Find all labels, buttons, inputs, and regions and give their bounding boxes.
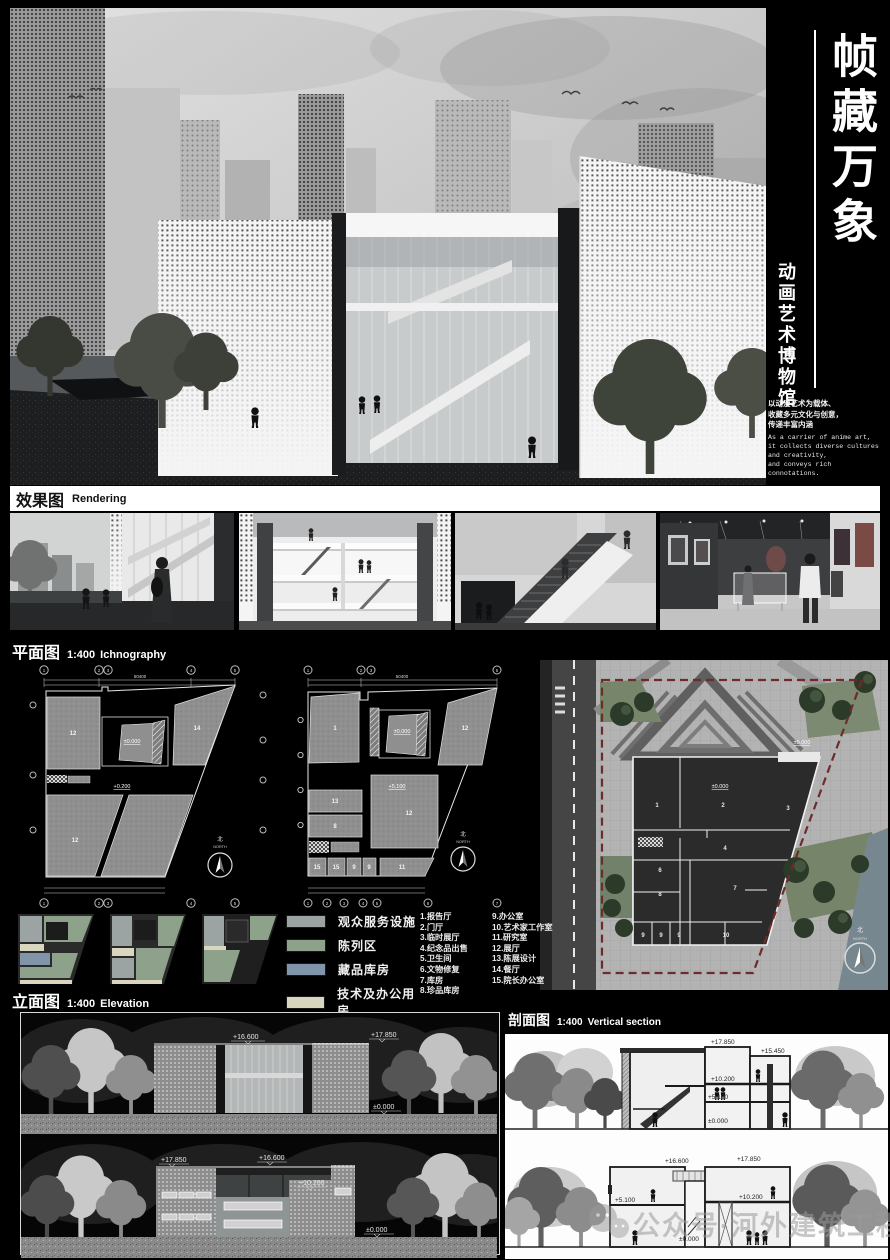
legend-swatch (286, 939, 326, 952)
level-label: +17.850 (371, 1032, 397, 1039)
level-marker: +0.200 (114, 784, 131, 790)
room-index-item: 11.研究室 (492, 933, 553, 944)
level-marker: ±0.000 (124, 739, 141, 745)
room-index-item: 6.文物修复 (420, 965, 468, 976)
section-drawing-1: +17.850 +15.450 +10.200 +5.100 ±0.000 (505, 1034, 888, 1140)
grid-bubbles-bottom (40, 899, 239, 907)
section-scale: 1:400 (557, 1017, 583, 1028)
room-index-item: 5.卫生间 (420, 954, 468, 965)
section-title-cn: 立面图 (12, 988, 60, 1012)
intro-en-line: it collects diverse cultures (768, 442, 886, 451)
level-label: ±0.000 (366, 1227, 387, 1234)
section-scale: 1:400 (67, 998, 95, 1010)
level-label: +10.200 (739, 1194, 763, 1201)
room-label: 12 (406, 811, 413, 817)
room-label: 15 (314, 865, 321, 871)
legend-zones: 观众服务设施 陈列区 藏品库房 技术及办公用房 (286, 913, 426, 1026)
room-label: 12 (70, 731, 77, 737)
elevation-drawing-2: +17.850 +16.600 +10.200 ±0.000 (21, 1140, 497, 1258)
board-title: 帧藏万象 (822, 32, 882, 252)
grid-label: 4 (190, 901, 193, 906)
grid-label: 5 (234, 668, 237, 673)
grid-label: 2 (326, 901, 329, 906)
site-plan: 1 2 3 4 6 8 7 9 9 9 10 ±0.000 ±0.000 北 N… (540, 660, 888, 990)
level-label: +10.200 (711, 1076, 735, 1083)
section-header-section: 剖面图 1:400 Vertical section (508, 1010, 661, 1030)
grid-bubbles-top (40, 666, 239, 674)
legend-label: 陈列区 (338, 937, 377, 954)
grid-label: 2 (360, 668, 363, 673)
grid-label: 1 (43, 901, 46, 906)
legend-row: 陈列区 (286, 937, 426, 954)
legend-swatch (286, 915, 326, 928)
north-en: NORTH (213, 845, 227, 849)
board-subtitle: 动画艺术博物馆 (773, 262, 799, 409)
legend-row: 藏品库房 (286, 961, 426, 978)
floor-plan-1: 50400 1 2 3 4 5 1 2 3 4 5 12 14 12 ±0.00… (25, 660, 270, 910)
room-label: 10 (723, 933, 730, 939)
section-header-elevation: 立面图 1:400 Elevation (12, 988, 149, 1012)
grid-label: 5 (496, 668, 499, 673)
room-index-item: 3.临时展厅 (420, 933, 468, 944)
level-marker: ±0.000 (394, 729, 411, 735)
north-arrow: 北 NORTH (208, 835, 232, 877)
room-index-item: 14.餐厅 (492, 965, 553, 976)
room-label: 11 (399, 865, 406, 871)
room-index-item: 15.院长办公室 (492, 976, 553, 987)
grid-label: 3 (107, 901, 110, 906)
level-label: +17.850 (737, 1156, 761, 1163)
zoning-thumb-3 (202, 914, 278, 984)
room-index-item: 7.库房 (420, 976, 468, 987)
building-elevation-2 (156, 1165, 355, 1237)
grid-label: 5 (234, 901, 237, 906)
grid-label: 1 (307, 901, 310, 906)
section-title-cn: 效果图 (16, 487, 64, 511)
render-gallery-interior (660, 513, 880, 630)
room-label: 15 (333, 865, 340, 871)
room-index-item: 8.珍品库房 (420, 986, 468, 997)
watermark: 公众号·河外建筑工程 (585, 1202, 890, 1244)
section-title-cn: 剖面图 (508, 1010, 550, 1030)
title-divider-line (814, 30, 816, 388)
room-index-item: 10.艺术家工作室 (492, 923, 553, 934)
building-section-1 (620, 1047, 790, 1129)
ground-strip (21, 1114, 497, 1134)
legend-swatch (286, 996, 325, 1009)
room-index-item: 4.纪念品出售 (420, 944, 468, 955)
room-label: 14 (194, 726, 201, 732)
elevation-panel: +16.600 +17.850 ±0.000 +17.850 +16.600 (20, 1012, 500, 1255)
level-label: +16.600 (259, 1155, 285, 1162)
zoning-thumb-1 (18, 914, 94, 984)
render-street-view (10, 513, 234, 630)
grid-label: 7 (496, 901, 499, 906)
grid-label: 3 (343, 901, 346, 906)
total-dimension: 50400 (396, 674, 409, 679)
zoning-thumbnails (16, 912, 278, 988)
grid-label: 6 (427, 901, 430, 906)
level-label: +5.100 (708, 1094, 728, 1101)
section-title-en: Vertical section (588, 1017, 661, 1028)
north-cn: 北 (217, 835, 223, 843)
level-label: ±0.000 (708, 1118, 728, 1125)
intro-en-line: and conveys rich connotations. (768, 460, 886, 478)
room-label: 12 (72, 838, 79, 844)
north-en: NORTH (456, 840, 470, 844)
level-label: +10.200 (299, 1180, 325, 1187)
section-title-en: Rendering (72, 493, 126, 505)
level-label: +16.600 (233, 1034, 259, 1041)
north-arrow: 北 NORTH (451, 830, 475, 871)
room-index-col2: 9.办公室 10.艺术家工作室 11.研究室 12.展厅 13.陈展设计 14.… (492, 912, 553, 986)
room-index-col1: 1.报告厅 2.门厅 3.临时展厅 4.纪念品出售 5.卫生间 6.文物修复 7… (420, 912, 468, 997)
room-index-item: 13.陈展设计 (492, 954, 553, 965)
intro-en-line: and creativity, (768, 451, 886, 460)
intro-en-line: As a carrier of anime art, (768, 433, 886, 442)
level-label: +16.600 (665, 1158, 689, 1165)
room-index-item: 12.展厅 (492, 944, 553, 955)
intro-cn-line: 收藏多元文化与创意， (768, 410, 886, 421)
ground-strip (21, 1237, 497, 1258)
legend-swatch (286, 963, 326, 976)
room-index-item: 9.办公室 (492, 912, 553, 923)
north-en: NORTH (853, 936, 867, 941)
room-label: 13 (332, 799, 339, 805)
grid-label: 2 (98, 668, 101, 673)
total-dimension: 50400 (134, 674, 147, 679)
level-label: +17.850 (711, 1039, 735, 1046)
legend-label: 藏品库房 (338, 961, 390, 978)
grid-label: 2 (98, 901, 101, 906)
level-label: +15.450 (761, 1048, 785, 1055)
wechat-icon (585, 1202, 633, 1244)
intro-text: 以动漫艺术为载体、 收藏多元文化与创意， 传递丰富内涵 As a carrier… (768, 399, 886, 479)
floor-plan-2: 50400 1 2 3 5 1 2 3 4 5 6 7 1 12 13 8 12… (297, 660, 509, 910)
north-cn: 北 (460, 830, 466, 838)
grid-label: 4 (362, 901, 365, 906)
watermark-text: 公众号·河外建筑工程 (633, 1204, 890, 1243)
level-marker: ±0.000 (794, 740, 811, 746)
room-index-item: 2.门厅 (420, 923, 468, 934)
legend-label: 观众服务设施 (338, 913, 416, 930)
render-section-perspective (239, 513, 451, 630)
level-marker: ±0.000 (712, 784, 729, 790)
grid-label: 4 (190, 668, 193, 673)
intro-cn-line: 以动漫艺术为载体、 (768, 399, 886, 410)
building-elevation-1 (154, 1043, 369, 1113)
grid-label: 5 (376, 901, 379, 906)
room-index-item: 1.报告厅 (420, 912, 468, 923)
presentation-board: 帧藏万象 动画艺术博物馆 以动漫艺术为载体、 收藏多元文化与创意， 传递丰富内涵… (0, 0, 890, 1260)
elevation-drawing-1: +16.600 +17.850 ±0.000 (21, 1013, 497, 1134)
level-marker: +5.100 (389, 784, 406, 790)
grid-label: 1 (43, 668, 46, 673)
grid-label: 3 (370, 668, 373, 673)
room-label: 12 (462, 726, 469, 732)
section-title-en: Elevation (100, 998, 149, 1010)
level-label: +17.850 (161, 1157, 187, 1164)
level-label: ±0.000 (373, 1104, 394, 1111)
north-cn: 北 (857, 926, 863, 934)
intro-cn-line: 传递丰富内涵 (768, 420, 886, 431)
legend-row: 观众服务设施 (286, 913, 426, 930)
zoning-thumb-2 (110, 914, 186, 984)
hero-rendering (10, 8, 766, 485)
grid-label: 1 (307, 668, 310, 673)
render-staircase (455, 513, 656, 630)
section-header-rendering: 效果图 Rendering (10, 486, 880, 511)
grid-label: 3 (107, 668, 110, 673)
